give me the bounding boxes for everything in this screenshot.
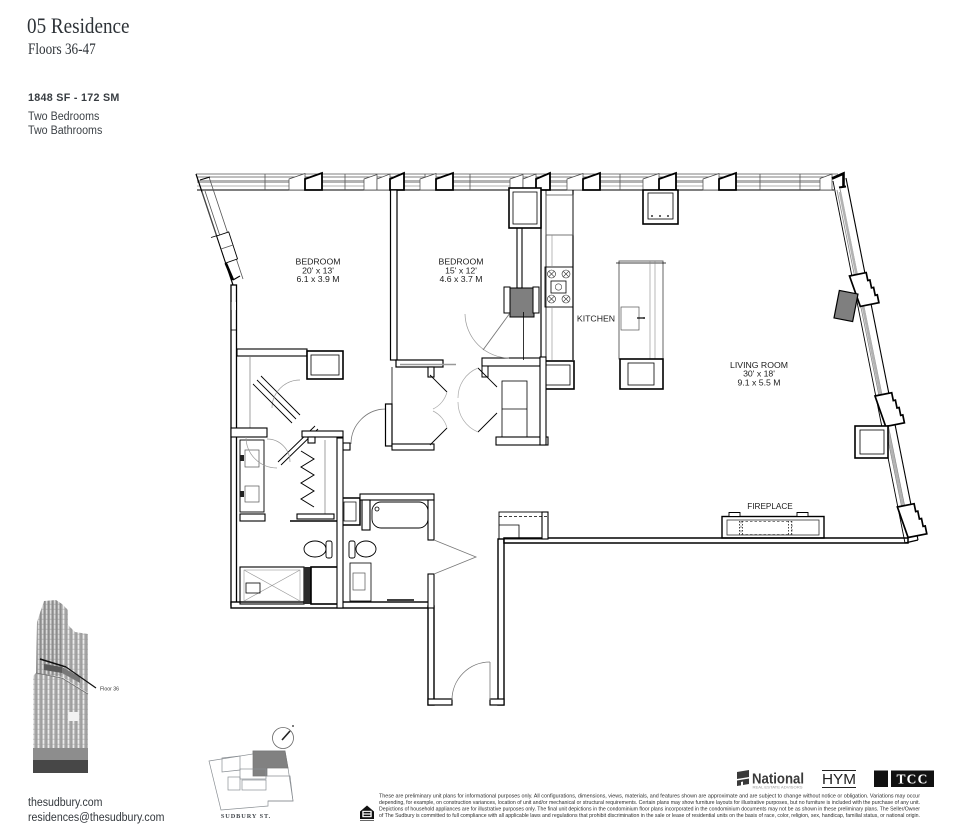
svg-text:Depictions of household applia: Depictions of household appliances are f… (379, 807, 920, 813)
svg-text:Floor 36: Floor 36 (100, 687, 119, 693)
svg-text:of The Sudbury is committed to: of The Sudbury is committed to full comp… (379, 813, 920, 819)
svg-text:4.6 x 3.7 M: 4.6 x 3.7 M (440, 274, 483, 284)
svg-text:depending, for example, on con: depending, for example, on construction … (379, 800, 920, 806)
svg-text:These are preliminary unit pla: These are preliminary unit plans for inf… (379, 794, 920, 800)
svg-text:TCC: TCC (896, 772, 928, 787)
svg-text:KITCHEN: KITCHEN (577, 314, 615, 324)
svg-text:SUDBURY ST.: SUDBURY ST. (221, 813, 271, 820)
svg-text:6.1 x 3.9 M: 6.1 x 3.9 M (297, 274, 340, 284)
svg-text:REAL ESTATE ADVISORS: REAL ESTATE ADVISORS (753, 786, 804, 790)
svg-text:FIREPLACE: FIREPLACE (747, 502, 793, 511)
svg-text:9.1 x 5.5 M: 9.1 x 5.5 M (738, 378, 781, 388)
svg-text:HYM: HYM (822, 772, 856, 788)
